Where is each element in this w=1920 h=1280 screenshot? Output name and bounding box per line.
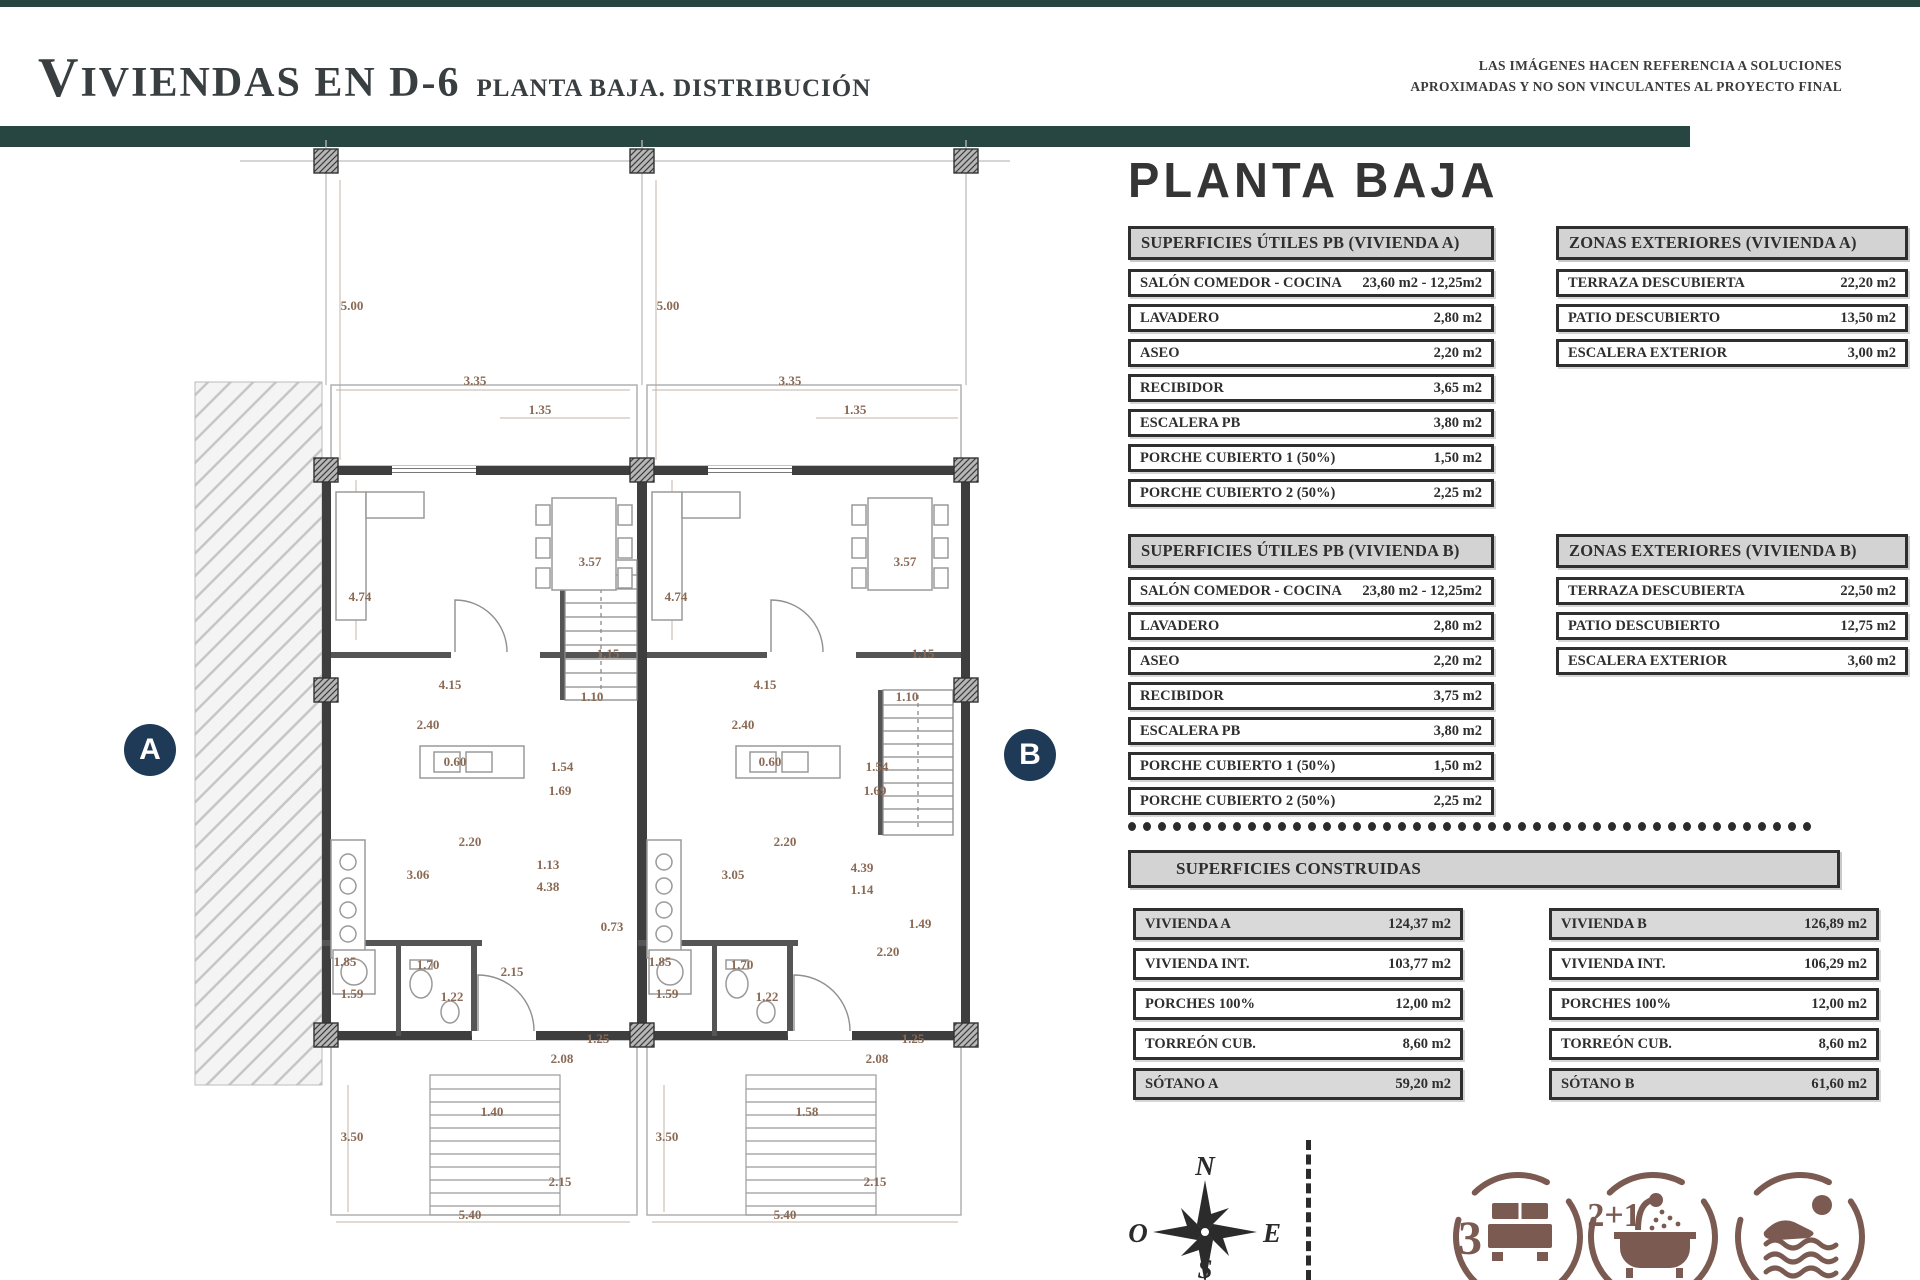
table-row: SÓTANO B61,60 m2 bbox=[1549, 1068, 1879, 1100]
dimension-label: 4.74 bbox=[349, 589, 372, 604]
row-label: PORCHE CUBIERTO 2 (50%) bbox=[1140, 485, 1335, 502]
separator-dot bbox=[1698, 822, 1706, 831]
row-label: LAVADERO bbox=[1140, 310, 1219, 327]
row-value: 103,77 m2 bbox=[1388, 956, 1451, 973]
separator-dot bbox=[1323, 822, 1331, 831]
row-value: 3,80 m2 bbox=[1434, 723, 1482, 740]
table-row: PORCHES 100%12,00 m2 bbox=[1549, 988, 1879, 1020]
dimension-label: 4.74 bbox=[665, 589, 688, 604]
row-label: ESCALERA PB bbox=[1140, 415, 1240, 432]
separator-dot bbox=[1173, 822, 1181, 831]
separator-dot bbox=[1398, 822, 1406, 831]
table-row: SALÓN COMEDOR - COCINA23,80 m2 - 12,25m2 bbox=[1128, 577, 1494, 605]
dimension-label: 2.40 bbox=[417, 717, 440, 732]
separator-dot bbox=[1203, 822, 1211, 831]
table-row: ESCALERA PB3,80 m2 bbox=[1128, 717, 1494, 745]
table-row: PORCHE CUBIERTO 2 (50%)2,25 m2 bbox=[1128, 787, 1494, 815]
row-value: 2,20 m2 bbox=[1434, 345, 1482, 362]
row-value: 3,65 m2 bbox=[1434, 380, 1482, 397]
separator-dot bbox=[1233, 822, 1241, 831]
dimension-label: 5.00 bbox=[341, 298, 364, 313]
row-label: PORCHE CUBIERTO 1 (50%) bbox=[1140, 758, 1335, 775]
table-superficies-construidas-header: SUPERFICIES CONSTRUIDAS bbox=[1128, 850, 1840, 897]
separator-dot bbox=[1338, 822, 1346, 831]
row-value: 2,20 m2 bbox=[1434, 653, 1482, 670]
table-row: ESCALERA EXTERIOR3,00 m2 bbox=[1556, 339, 1908, 367]
table-row: VIVIENDA B126,89 m2 bbox=[1549, 908, 1879, 940]
dimension-label: 2.15 bbox=[549, 1174, 572, 1189]
amenity-badges: 3 2+1 bbox=[1432, 1151, 1887, 1280]
dimension-label: 1.59 bbox=[656, 986, 679, 1001]
adjacent-section-hatch bbox=[195, 382, 322, 1085]
row-label: PORCHE CUBIERTO 1 (50%) bbox=[1140, 450, 1335, 467]
separator-dot bbox=[1428, 822, 1436, 831]
dimension-label: 1.54 bbox=[551, 759, 574, 774]
separator-dot bbox=[1473, 822, 1481, 831]
dimension-label: 0.60 bbox=[444, 754, 467, 769]
separator-dot bbox=[1728, 822, 1736, 831]
table-row: SALÓN COMEDOR - COCINA23,60 m2 - 12,25m2 bbox=[1128, 269, 1494, 297]
dimension-label: 1.25 bbox=[902, 1031, 925, 1046]
dimension-label: 2.15 bbox=[501, 964, 524, 979]
row-label: TORREÓN CUB. bbox=[1561, 1036, 1672, 1053]
separator-dot bbox=[1743, 822, 1751, 831]
row-value: 3,00 m2 bbox=[1848, 345, 1896, 362]
dimension-label: 3.05 bbox=[722, 867, 745, 882]
row-label: VIVIENDA INT. bbox=[1561, 956, 1665, 973]
row-value: 61,60 m2 bbox=[1811, 1076, 1867, 1093]
svg-text:2+1: 2+1 bbox=[1587, 1197, 1640, 1234]
row-label: ESCALERA PB bbox=[1140, 723, 1240, 740]
row-label: TORREÓN CUB. bbox=[1145, 1036, 1256, 1053]
row-label: VIVIENDA A bbox=[1145, 916, 1231, 933]
table-row: TERRAZA DESCUBIERTA22,50 m2 bbox=[1556, 577, 1908, 605]
dimension-label: 1.85 bbox=[334, 954, 357, 969]
structural-grid-lines bbox=[240, 140, 1010, 385]
table-row: LAVADERO2,80 m2 bbox=[1128, 304, 1494, 332]
table-row: ASEO2,20 m2 bbox=[1128, 647, 1494, 675]
row-value: 3,60 m2 bbox=[1848, 653, 1896, 670]
separator-dot bbox=[1788, 822, 1796, 831]
panel-heading: PLANTA BAJA bbox=[1128, 151, 1498, 209]
unit-b-marker: B bbox=[1004, 729, 1056, 781]
row-label: ESCALERA EXTERIOR bbox=[1568, 345, 1727, 362]
row-label: VIVIENDA INT. bbox=[1145, 956, 1249, 973]
table-superficies-utiles-b: SUPERFICIES ÚTILES PB (VIVIENDA B)SALÓN … bbox=[1128, 534, 1494, 822]
separator-dot bbox=[1758, 822, 1766, 831]
dashed-separator bbox=[1306, 1140, 1311, 1280]
dimension-label: 1.70 bbox=[417, 957, 440, 972]
separator-dot bbox=[1503, 822, 1511, 831]
separator-dot bbox=[1638, 822, 1646, 831]
row-value: 106,29 m2 bbox=[1804, 956, 1867, 973]
row-value: 2,80 m2 bbox=[1434, 310, 1482, 327]
separator-dot bbox=[1653, 822, 1661, 831]
separator-dot bbox=[1263, 822, 1271, 831]
dimension-label: 1.70 bbox=[731, 957, 754, 972]
dimension-label: 1.85 bbox=[649, 954, 672, 969]
table-row: PORCHE CUBIERTO 1 (50%)1,50 m2 bbox=[1128, 752, 1494, 780]
separator-dot bbox=[1218, 822, 1226, 831]
row-value: 1,50 m2 bbox=[1434, 758, 1482, 775]
row-value: 59,20 m2 bbox=[1395, 1076, 1451, 1093]
row-value: 126,89 m2 bbox=[1804, 916, 1867, 933]
compass-east-label: E bbox=[1262, 1218, 1281, 1248]
separator-dot bbox=[1563, 822, 1571, 831]
separator-dot bbox=[1293, 822, 1301, 831]
dimension-label: 3.35 bbox=[464, 373, 487, 388]
unit-a-marker: A bbox=[124, 724, 176, 776]
dimension-label: 1.35 bbox=[844, 402, 867, 417]
dimension-label: 2.20 bbox=[459, 834, 482, 849]
table-row: SÓTANO A59,20 m2 bbox=[1133, 1068, 1463, 1100]
dimension-label: 5.40 bbox=[459, 1207, 482, 1222]
dimension-label: 5.40 bbox=[774, 1207, 797, 1222]
table-row: PATIO DESCUBIERTO12,75 m2 bbox=[1556, 612, 1908, 640]
separator-dot bbox=[1593, 822, 1601, 831]
table-row: TORREÓN CUB.8,60 m2 bbox=[1133, 1028, 1463, 1060]
row-label: SALÓN COMEDOR - COCINA bbox=[1140, 583, 1342, 600]
dimension-label: 1.35 bbox=[529, 402, 552, 417]
row-label: PATIO DESCUBIERTO bbox=[1568, 618, 1720, 635]
separator-dot bbox=[1308, 822, 1316, 831]
separator-dot bbox=[1773, 822, 1781, 831]
dimension-label: 3.50 bbox=[341, 1129, 364, 1144]
table-row: PATIO DESCUBIERTO13,50 m2 bbox=[1556, 304, 1908, 332]
separator-dot bbox=[1128, 822, 1136, 831]
separator-dot bbox=[1668, 822, 1676, 831]
row-value: 8,60 m2 bbox=[1403, 1036, 1451, 1053]
table-row: RECIBIDOR3,75 m2 bbox=[1128, 682, 1494, 710]
row-label: PORCHE CUBIERTO 2 (50%) bbox=[1140, 793, 1335, 810]
dimension-label: 5.00 bbox=[657, 298, 680, 313]
dimension-label: 2.08 bbox=[866, 1051, 889, 1066]
dimension-label: 1.10 bbox=[896, 689, 919, 704]
row-label: TERRAZA DESCUBIERTA bbox=[1568, 275, 1745, 292]
dimension-label: 1.59 bbox=[341, 986, 364, 1001]
table-row: VIVIENDA INT.106,29 m2 bbox=[1549, 948, 1879, 980]
row-label: ESCALERA EXTERIOR bbox=[1568, 653, 1727, 670]
row-value: 3,75 m2 bbox=[1434, 688, 1482, 705]
pool-icon bbox=[1714, 1151, 1887, 1280]
table-zonas-exteriores-a: ZONAS EXTERIORES (VIVIENDA A)TERRAZA DES… bbox=[1556, 226, 1908, 374]
row-value: 23,80 m2 - 12,25m2 bbox=[1362, 583, 1482, 600]
separator-dot bbox=[1488, 822, 1496, 831]
table-row: RECIBIDOR3,65 m2 bbox=[1128, 374, 1494, 402]
separator-dot bbox=[1368, 822, 1376, 831]
table-row: VIVIENDA INT.103,77 m2 bbox=[1133, 948, 1463, 980]
row-value: 3,80 m2 bbox=[1434, 415, 1482, 432]
separator-dot bbox=[1458, 822, 1466, 831]
dimension-label: 1.69 bbox=[864, 783, 887, 798]
table-row: PORCHE CUBIERTO 2 (50%)2,25 m2 bbox=[1128, 479, 1494, 507]
row-label: RECIBIDOR bbox=[1140, 688, 1224, 705]
separator-dot bbox=[1248, 822, 1256, 831]
table-zonas-exteriores-b: ZONAS EXTERIORES (VIVIENDA B)TERRAZA DES… bbox=[1556, 534, 1908, 682]
dimension-label: 1.15 bbox=[597, 646, 620, 661]
dimension-label: 2.08 bbox=[551, 1051, 574, 1066]
table-superficies-utiles-a: SUPERFICIES ÚTILES PB (VIVIENDA A)SALÓN … bbox=[1128, 226, 1494, 514]
row-value: 12,00 m2 bbox=[1811, 996, 1867, 1013]
dimension-label: 1.15 bbox=[912, 646, 935, 661]
dotted-separator bbox=[1128, 822, 1852, 831]
row-label: PORCHES 100% bbox=[1561, 996, 1671, 1013]
row-label: SÓTANO A bbox=[1145, 1076, 1218, 1093]
dimension-label: 2.15 bbox=[864, 1174, 887, 1189]
dimension-label: 3.06 bbox=[407, 867, 430, 882]
row-value: 2,80 m2 bbox=[1434, 618, 1482, 635]
row-label: LAVADERO bbox=[1140, 618, 1219, 635]
row-value: 2,25 m2 bbox=[1434, 485, 1482, 502]
row-label: VIVIENDA B bbox=[1561, 916, 1647, 933]
table-title: SUPERFICIES ÚTILES PB (VIVIENDA B) bbox=[1128, 534, 1494, 568]
dimension-label: 1.58 bbox=[796, 1104, 819, 1119]
row-value: 22,20 m2 bbox=[1840, 275, 1896, 292]
separator-dot bbox=[1803, 822, 1811, 831]
separator-dot bbox=[1143, 822, 1151, 831]
separator-dot bbox=[1713, 822, 1721, 831]
row-label: TERRAZA DESCUBIERTA bbox=[1568, 583, 1745, 600]
dimension-label: 1.25 bbox=[587, 1031, 610, 1046]
exterior-stairs bbox=[430, 1075, 876, 1215]
row-label: SÓTANO B bbox=[1561, 1076, 1634, 1093]
separator-dot bbox=[1278, 822, 1286, 831]
row-value: 124,37 m2 bbox=[1388, 916, 1451, 933]
dimension-label: 3.35 bbox=[779, 373, 802, 388]
table-row: PORCHES 100%12,00 m2 bbox=[1133, 988, 1463, 1020]
bath-icon: 2+1 bbox=[1567, 1151, 1740, 1280]
dimension-label: 3.57 bbox=[579, 554, 602, 569]
separator-dot bbox=[1353, 822, 1361, 831]
row-label: PATIO DESCUBIERTO bbox=[1568, 310, 1720, 327]
dimension-label: 4.15 bbox=[439, 677, 462, 692]
separator-dot bbox=[1413, 822, 1421, 831]
row-label: ASEO bbox=[1140, 653, 1180, 670]
table-row: TORREÓN CUB.8,60 m2 bbox=[1549, 1028, 1879, 1060]
table-title: ZONAS EXTERIORES (VIVIENDA A) bbox=[1556, 226, 1908, 260]
stairs-unit-b bbox=[883, 690, 953, 835]
separator-dot bbox=[1443, 822, 1451, 831]
separator-dot bbox=[1683, 822, 1691, 831]
table-construidas-col-a: VIVIENDA A124,37 m2VIVIENDA INT.103,77 m… bbox=[1133, 908, 1463, 1108]
dimension-label: 4.38 bbox=[537, 879, 560, 894]
separator-dot bbox=[1518, 822, 1526, 831]
table-row: LAVADERO2,80 m2 bbox=[1128, 612, 1494, 640]
svg-text:3: 3 bbox=[1458, 1212, 1482, 1265]
dimension-label: 2.20 bbox=[877, 944, 900, 959]
table-row: VIVIENDA A124,37 m2 bbox=[1133, 908, 1463, 940]
row-value: 2,25 m2 bbox=[1434, 793, 1482, 810]
separator-dot bbox=[1188, 822, 1196, 831]
dimension-label: 2.20 bbox=[774, 834, 797, 849]
compass-north-label: N bbox=[1194, 1151, 1216, 1181]
compass-icon: N E S O bbox=[1128, 1151, 1281, 1280]
table-construidas-col-b: VIVIENDA B126,89 m2VIVIENDA INT.106,29 m… bbox=[1549, 908, 1879, 1108]
compass-south-label: S bbox=[1197, 1254, 1212, 1280]
row-value: 1,50 m2 bbox=[1434, 450, 1482, 467]
dimension-label: 1.49 bbox=[909, 916, 932, 931]
row-label: RECIBIDOR bbox=[1140, 380, 1224, 397]
dimension-label: 1.10 bbox=[581, 689, 604, 704]
dimension-label: 1.14 bbox=[851, 882, 874, 897]
dimension-label: 1.22 bbox=[756, 989, 779, 1004]
dimension-label: 1.13 bbox=[537, 857, 560, 872]
separator-dot bbox=[1383, 822, 1391, 831]
dimension-label: 1.69 bbox=[549, 783, 572, 798]
separator-dot bbox=[1533, 822, 1541, 831]
table-row: ESCALERA EXTERIOR3,60 m2 bbox=[1556, 647, 1908, 675]
table-title: ZONAS EXTERIORES (VIVIENDA B) bbox=[1556, 534, 1908, 568]
page: VIVIENDAS EN D-6 PLANTA BAJA. DISTRIBUCI… bbox=[0, 0, 1920, 1280]
separator-dot bbox=[1158, 822, 1166, 831]
row-value: 22,50 m2 bbox=[1840, 583, 1896, 600]
row-label: PORCHES 100% bbox=[1145, 996, 1255, 1013]
separator-dot bbox=[1548, 822, 1556, 831]
row-value: 12,75 m2 bbox=[1840, 618, 1896, 635]
dimension-label: 4.15 bbox=[754, 677, 777, 692]
row-label: ASEO bbox=[1140, 345, 1180, 362]
table-title: SUPERFICIES ÚTILES PB (VIVIENDA A) bbox=[1128, 226, 1494, 260]
table-row: TERRAZA DESCUBIERTA22,20 m2 bbox=[1556, 269, 1908, 297]
separator-dot bbox=[1578, 822, 1586, 831]
dimension-label: 3.50 bbox=[656, 1129, 679, 1144]
dimension-label: 1.40 bbox=[481, 1104, 504, 1119]
bed-icon: 3 bbox=[1432, 1151, 1605, 1280]
dimension-label: 4.39 bbox=[851, 860, 874, 875]
table-title: SUPERFICIES CONSTRUIDAS bbox=[1128, 850, 1840, 888]
dimension-label: 1.54 bbox=[866, 759, 889, 774]
dimension-label: 1.22 bbox=[441, 989, 464, 1004]
separator-dot bbox=[1623, 822, 1631, 831]
row-value: 13,50 m2 bbox=[1840, 310, 1896, 327]
row-value: 8,60 m2 bbox=[1819, 1036, 1867, 1053]
row-value: 23,60 m2 - 12,25m2 bbox=[1362, 275, 1482, 292]
separator-dot bbox=[1608, 822, 1616, 831]
table-row: ESCALERA PB3,80 m2 bbox=[1128, 409, 1494, 437]
dimension-label: 3.57 bbox=[894, 554, 917, 569]
table-row: ASEO2,20 m2 bbox=[1128, 339, 1494, 367]
compass-west-label: O bbox=[1128, 1218, 1148, 1248]
dimension-label: 0.60 bbox=[759, 754, 782, 769]
row-value: 12,00 m2 bbox=[1395, 996, 1451, 1013]
dimension-label: 0.73 bbox=[601, 919, 624, 934]
table-row: PORCHE CUBIERTO 1 (50%)1,50 m2 bbox=[1128, 444, 1494, 472]
dimension-label: 2.40 bbox=[732, 717, 755, 732]
row-label: SALÓN COMEDOR - COCINA bbox=[1140, 275, 1342, 292]
